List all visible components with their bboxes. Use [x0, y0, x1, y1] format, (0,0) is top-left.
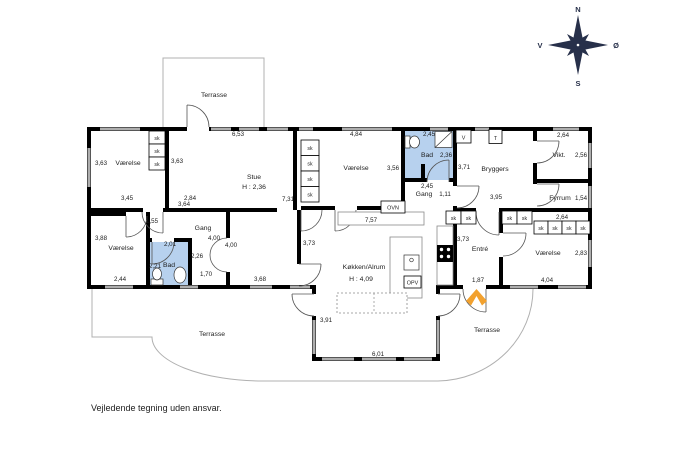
dimension-label: 3,73 [457, 236, 470, 243]
dimension-label: 7,31 [282, 196, 295, 203]
washing-machine-label: V [462, 136, 466, 142]
dimension-label: 4,00 [208, 235, 221, 242]
dimension-label: 2,26 [191, 253, 204, 260]
room-label-vikt: Vikt. [552, 152, 565, 159]
closet-label: sk [307, 162, 313, 168]
dimension-label: 1,70 [200, 271, 213, 278]
dimension-label: 3,73 [303, 240, 316, 247]
dimension-label: 2,83 [575, 250, 588, 257]
room-label-stue: Stue [247, 174, 261, 181]
compass-west-label: V [537, 41, 542, 50]
dimension-label: 3,88 [95, 235, 108, 242]
kitchen-sink-icon [404, 255, 419, 270]
dimension-label: 2,45 [423, 131, 436, 138]
closet-label: sk [507, 216, 513, 222]
closet-label: sk [307, 193, 313, 199]
room-label-bryggers: Bryggers [481, 166, 509, 173]
dimension-label: 1,11 [439, 191, 451, 198]
room-label-gang-n: Gang [416, 191, 433, 198]
floor-plan-drawing: sk sk sk sk sk sk sk sk sk sk sk sk sk s… [0, 0, 687, 457]
closet-label: sk [566, 226, 572, 232]
oven-label: OVN [387, 206, 399, 212]
dimension-label: 3,64 [178, 201, 191, 208]
room-label-vaerelse-sw: Værelse [108, 245, 134, 252]
dishwasher-label: OPV [407, 281, 419, 287]
dimension-label: 3,68 [254, 276, 267, 283]
dimension-label: 3,71 [458, 164, 471, 171]
dimension-label: 3,95 [490, 194, 503, 201]
room-label-vaerelse-se: Værelse [535, 250, 561, 257]
dimension-label: 2,44 [114, 276, 127, 283]
closet-label: sk [580, 226, 586, 232]
room-height-stue: H : 2,36 [242, 184, 266, 191]
dimension-label: 1,55 [146, 218, 159, 225]
room-label-bad-n: Bad [421, 152, 433, 159]
closet-label: sk [154, 162, 160, 168]
dimension-label: 6,53 [232, 131, 245, 138]
dimension-label: 1,54 [575, 195, 588, 202]
dimension-label: 2,21 [149, 263, 162, 270]
floor-plan-page: sk sk sk sk sk sk sk sk sk sk sk sk sk s… [0, 0, 687, 457]
room-label-terrasse-se: Terrasse [474, 327, 500, 334]
room-label-koekken: Køkken/Alrum [343, 264, 386, 271]
closet-label: sk [522, 216, 528, 222]
dimension-label: 4,00 [225, 242, 238, 249]
entrance-arrow-icon [466, 289, 487, 306]
closet-label: sk [451, 216, 457, 222]
dimension-label: 3,45 [121, 195, 134, 202]
room-label-fyrrum: Fyrrum [549, 195, 571, 202]
dimension-label: 2,64 [556, 214, 569, 221]
disclaimer-text: Vejledende tegning uden ansvar. [91, 403, 222, 413]
compass-north-label: N [575, 5, 580, 14]
dimension-label: 7,57 [365, 217, 378, 224]
dimension-label: 1,87 [472, 277, 485, 284]
closet-label: sk [466, 216, 472, 222]
dining-table-dashed [337, 293, 407, 313]
closet-label: sk [307, 146, 313, 152]
closet-label: sk [552, 226, 558, 232]
dimension-label: 3,63 [95, 160, 108, 167]
dimension-label: 2,64 [557, 132, 570, 139]
room-label-terrasse-top: Terrasse [201, 92, 227, 99]
closet-label: sk [538, 226, 544, 232]
bath-partition-wall [421, 164, 425, 182]
compass-east-label: Ø [613, 41, 619, 50]
closet-label: sk [154, 136, 160, 142]
compass-south-label: S [575, 79, 580, 88]
dimension-label: 2,01 [164, 241, 177, 248]
dimension-label: 2,45 [421, 183, 434, 190]
dimension-label: 3,63 [171, 158, 184, 165]
faucet-icon [410, 258, 414, 262]
dimension-label: 2,56 [575, 152, 588, 159]
closet-label: sk [307, 177, 313, 183]
room-label-vaerelse-nw: Værelse [115, 160, 141, 167]
stove-icon [437, 245, 453, 262]
room-label-terrasse-sw: Terrasse [199, 331, 225, 338]
room-label-gang-s: Gang [195, 225, 212, 232]
sink-icon [174, 267, 186, 283]
compass-rose: N S V Ø [537, 5, 619, 88]
dimension-label: 4,84 [350, 131, 363, 138]
dimension-label: 2,36 [440, 152, 453, 159]
room-label-vaerelse-n: Værelse [343, 165, 369, 172]
room-label-entre: Entré [472, 246, 488, 253]
dimension-label: 3,56 [387, 165, 400, 172]
toilet-icon [410, 136, 420, 148]
dimension-label: 6,01 [372, 351, 385, 358]
room-label-bad-s: Bad [163, 262, 175, 269]
dimension-label: 4,04 [541, 277, 554, 284]
kitchen-counter [338, 212, 424, 225]
dimension-label: 3,91 [320, 317, 333, 324]
closet-label: sk [154, 149, 160, 155]
room-height-koekken: H : 4,09 [349, 276, 373, 283]
